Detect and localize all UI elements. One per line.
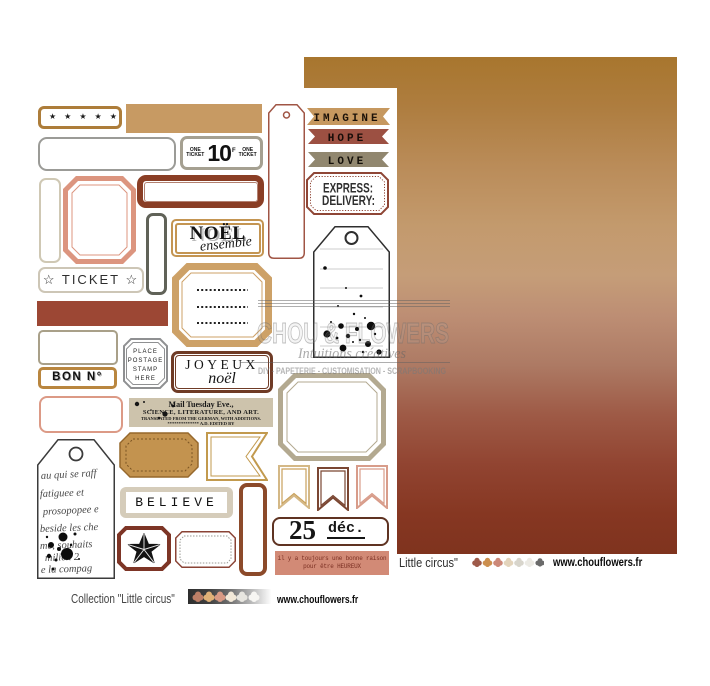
svg-text:LOVE: LOVE xyxy=(328,156,366,167)
svg-text:DELIVERY:: DELIVERY: xyxy=(322,192,375,208)
svg-text:PLACE: PLACE xyxy=(133,349,158,355)
svg-text:e la compag: e la compag xyxy=(41,563,93,576)
svg-text:HOPE: HOPE xyxy=(328,133,366,144)
svg-text:fatiguee et: fatiguee et xyxy=(40,487,85,500)
svg-text:STAMP: STAMP xyxy=(133,367,158,373)
svg-text:DIY - PAPETERIE - CUSTOMISATIO: DIY - PAPETERIE - CUSTOMISATION - SCRAPB… xyxy=(258,366,446,377)
svg-text:Intuitions créatives: Intuitions créatives xyxy=(297,346,406,362)
svg-text:IMAGINE: IMAGINE xyxy=(313,113,380,125)
svg-text:HERE: HERE xyxy=(135,376,156,382)
svg-text:POSTAGE: POSTAGE xyxy=(128,358,164,364)
svg-text:beside les che: beside les che xyxy=(40,522,99,535)
